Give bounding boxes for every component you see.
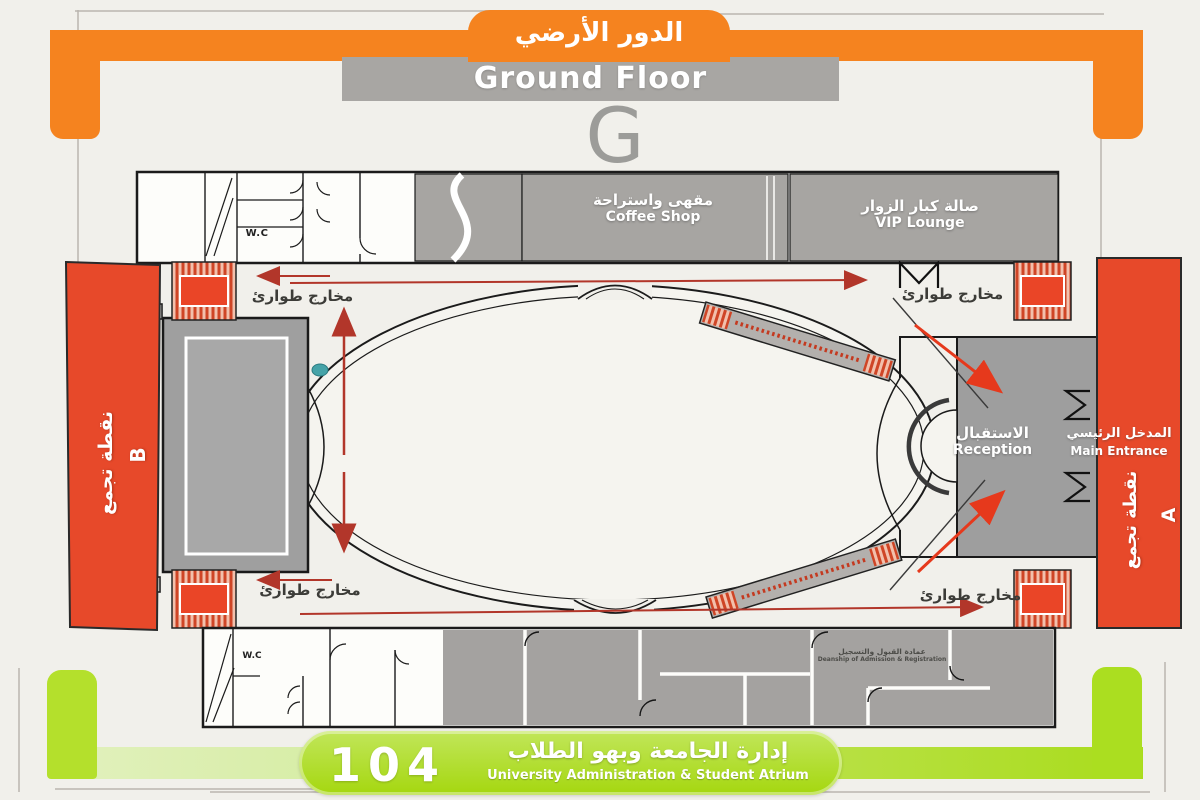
floor-letter: G (540, 94, 690, 178)
assembly-point-a-letter: A (1158, 497, 1184, 533)
vip-lounge-label: صالة كبار الزوار VIP Lounge (800, 197, 1040, 231)
stage-block (144, 304, 328, 592)
vip-lounge-label-en: VIP Lounge (800, 215, 1040, 231)
main-entrance-label: المدخل الرئيسي Main Entrance (1048, 425, 1190, 459)
wc-label-top: W.C (238, 228, 276, 239)
reception-label-en: Reception (915, 442, 1070, 458)
wc-label-bottom: W.C (234, 651, 270, 661)
admissions-label-en: Deanship of Admission & Registration (808, 656, 956, 663)
main-entrance-label-ar: المدخل الرئيسي (1048, 425, 1190, 443)
coffee-shop-label-ar: مقهى واستراحة (533, 191, 773, 209)
orange-frame-left (50, 30, 100, 139)
stairs-top-left (172, 262, 236, 320)
reception-label: الاستقبال Reception (915, 424, 1070, 458)
footer-label-ar: إدارة الجامعة وبهو الطلاب (462, 739, 834, 764)
admissions-label: عمادة القبول والتسجيل Deanship of Admiss… (808, 647, 956, 663)
emergency-exit-label-top-right: مخارج طوارئ (895, 285, 1010, 303)
assembly-point-a-label: نقطة تجمع (1120, 445, 1144, 595)
orange-frame-right (1093, 30, 1143, 139)
floor-plan-poster: Ground Floor الدور الأرضي G مقهى واستراح… (0, 0, 1200, 800)
reception-label-ar: الاستقبال (915, 424, 1070, 442)
stairs-top-right (1014, 262, 1071, 320)
coffee-shop-label-en: Coffee Shop (533, 209, 773, 225)
bottom-room-strip (203, 628, 1055, 727)
admissions-label-ar: عمادة القبول والتسجيل (808, 647, 956, 656)
coffee-shop-label: مقهى واستراحة Coffee Shop (533, 191, 773, 225)
page-title: الدور الأرضي (468, 10, 730, 62)
emergency-exit-label-bottom-left: مخارج طوارئ (250, 581, 370, 599)
emergency-exit-label-bottom-right: مخارج طوارئ (908, 586, 1033, 604)
main-entrance-label-en: Main Entrance (1048, 443, 1190, 459)
assembly-point-b-label: نقطة تجمع (95, 383, 121, 543)
column-dot (312, 364, 328, 376)
stairs-bottom-left (172, 570, 236, 628)
vip-lounge-label-ar: صالة كبار الزوار (800, 197, 1040, 215)
footer-label-en: University Administration & Student Atri… (462, 768, 834, 783)
room-number: 104 (310, 736, 465, 792)
emergency-exit-label-top-left: مخارج طوارئ (245, 287, 360, 305)
green-frame-right (1092, 667, 1142, 779)
assembly-point-b-letter: B (126, 437, 154, 473)
green-frame-left (47, 670, 97, 779)
